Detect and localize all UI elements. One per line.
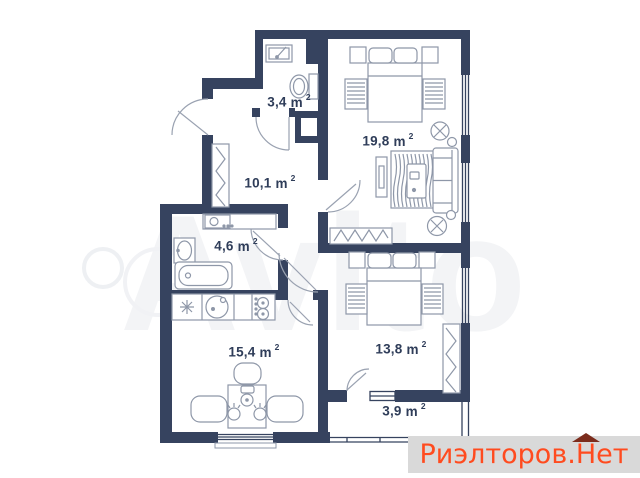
room-label-bedroom: 13,8m2 <box>375 340 426 357</box>
window-kitchen <box>218 435 273 440</box>
tv-stand-icon <box>376 157 387 197</box>
shaft-inner <box>301 118 317 136</box>
sofa-icon <box>433 148 458 213</box>
dining-table-icon <box>191 363 303 428</box>
brand-watermark-bar: Риэлторов.Нет <box>408 436 640 473</box>
entrance-door <box>172 99 208 135</box>
bedroom-bed-icon <box>346 252 443 325</box>
room-label-hallway: 10,1m2 <box>244 174 295 191</box>
wc-sink-icon <box>266 45 292 62</box>
room-label-balcony: 3,9m2 <box>382 402 426 419</box>
hall-wardrobe-icon <box>212 144 229 207</box>
bedroom-wardrobe-icon <box>443 324 460 393</box>
wc-door <box>256 117 289 150</box>
floorplan-screenshot: { "watermark": { "text": "Avito" }, "bra… <box>0 0 640 478</box>
kitchen-window-sill <box>215 443 276 448</box>
clothes-rack-icon <box>330 228 392 244</box>
brand-suffix-with-roof-icon: Нет <box>576 441 629 468</box>
window-living-1 <box>463 75 469 135</box>
fridge-icon <box>180 300 194 314</box>
washer-counter-icon <box>203 214 276 229</box>
bathtub-icon <box>175 262 232 289</box>
bath-sink-icon <box>174 238 195 263</box>
floor-plan-drawing: Avito <box>0 0 640 478</box>
living-bed-icon <box>345 47 445 122</box>
brand-name: Риэлторов. <box>420 441 576 468</box>
room-label-living-bedroom: 19,8m2 <box>362 132 413 149</box>
room-label-bathroom: 4,6m2 <box>214 237 258 254</box>
room-label-kitchen: 15,4m2 <box>228 343 279 360</box>
room-label-wc: 3,4m2 <box>267 93 311 110</box>
coffee-table-icon <box>407 164 426 198</box>
balcony-door <box>347 369 369 391</box>
kitchen-sink-icon <box>206 296 228 318</box>
